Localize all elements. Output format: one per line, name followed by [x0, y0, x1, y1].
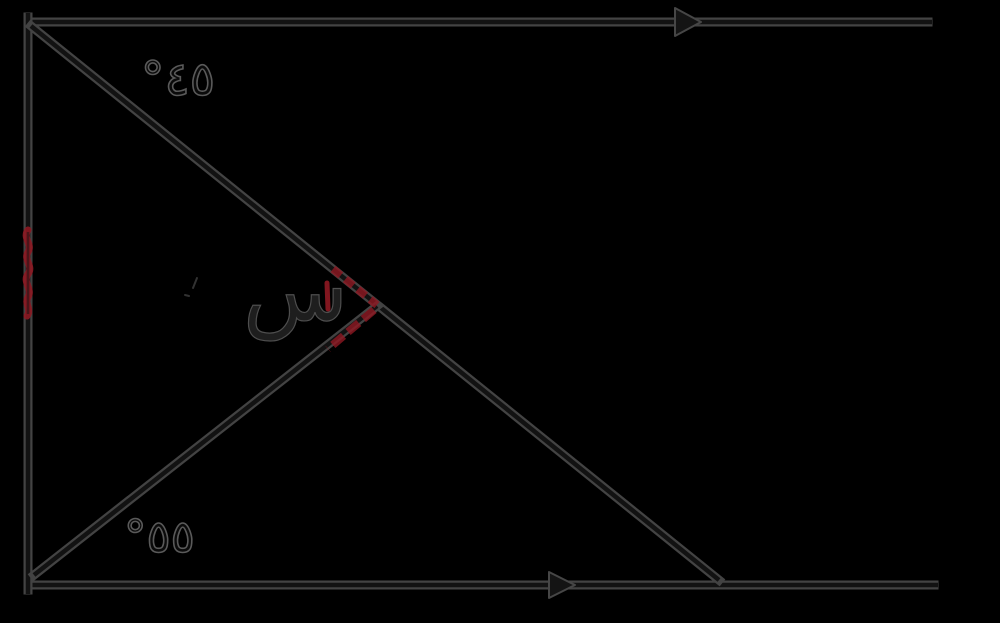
unknown-angle-label: س	[243, 241, 348, 341]
geometry-diagram: °٤٥ °٥٥ س	[0, 0, 1000, 623]
top-angle-label: °٤٥	[141, 52, 215, 107]
stray-dot-mark	[185, 295, 189, 296]
bottom-angle-label: °٥٥	[124, 510, 195, 563]
